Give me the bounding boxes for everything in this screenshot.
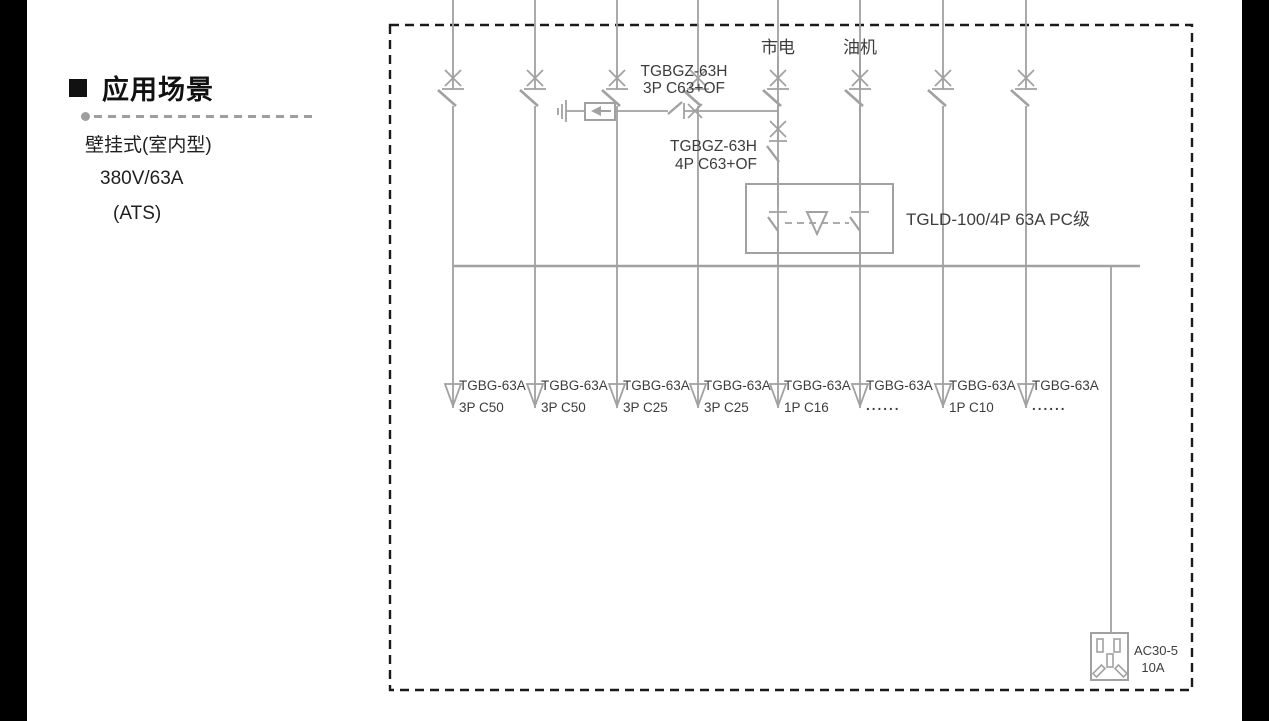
branch-3-spec-label: 3P C25 xyxy=(623,400,668,415)
ats-model-label: TGLD-100/4P 63A PC级 xyxy=(906,210,1090,229)
earth-ground-icon xyxy=(558,100,566,122)
diagram-labels: 市电 油机 TGBGZ-63H 3P C63+OF TGBGZ-63H 4P C… xyxy=(459,38,1178,675)
single-line-diagram: 市电 油机 TGBGZ-63H 3P C63+OF TGBGZ-63H 4P C… xyxy=(0,0,1269,721)
main-breaker-spec-label: 4P C63+OF xyxy=(675,156,757,173)
branch-1-spec-label: 3P C50 xyxy=(459,400,504,415)
slide: 应用场景 壁挂式(室内型) 380V/63A (ATS) xyxy=(0,0,1269,721)
branch-6-spec-label: ...... xyxy=(866,398,901,413)
branch-2-model-label: TGBG-63A xyxy=(541,378,608,393)
mains-label: 市电 xyxy=(761,38,795,57)
socket-branch xyxy=(1091,266,1128,680)
feeder-branch-1 xyxy=(438,0,464,408)
branch-2-spec-label: 3P C50 xyxy=(541,400,586,415)
diagram-dashed-border xyxy=(390,25,1192,690)
branch-7-spec-label: 1P C10 xyxy=(949,400,994,415)
branch-8-model-label: TGBG-63A xyxy=(1032,378,1099,393)
spd-branch xyxy=(558,100,778,122)
branch-5-spec-label: 1P C16 xyxy=(784,400,829,415)
branch-7-model-label: TGBG-63A xyxy=(949,378,1016,393)
diagram-wiring xyxy=(438,0,1140,680)
socket-icon xyxy=(1091,633,1128,680)
ats-left-blade-icon xyxy=(768,217,778,231)
ats-right-blade-icon xyxy=(850,217,860,231)
socket-model-label: AC30-5 xyxy=(1134,643,1178,658)
branch-6-model-label: TGBG-63A xyxy=(866,378,933,393)
feeder-branch-2 xyxy=(520,0,546,408)
spd-breaker-spec-label: 3P C63+OF xyxy=(643,80,725,97)
branch-8-spec-label: ...... xyxy=(1032,398,1067,413)
feeder-branch-5 xyxy=(763,0,789,408)
generator-label: 油机 xyxy=(843,38,877,57)
feeder-branch-4 xyxy=(683,0,709,408)
ats-switch xyxy=(746,184,893,266)
spd-breaker-model-label: TGBGZ-63H xyxy=(641,63,728,80)
feeder-branch-6 xyxy=(845,0,871,408)
surge-arrester-icon xyxy=(585,103,615,120)
branch-3-model-label: TGBG-63A xyxy=(623,378,690,393)
feeder-branch-8 xyxy=(1011,0,1037,408)
main-breaker-model-label: TGBGZ-63H xyxy=(670,138,757,155)
branch-1-model-label: TGBG-63A xyxy=(459,378,526,393)
branch-4-model-label: TGBG-63A xyxy=(704,378,771,393)
feeder-branch-7 xyxy=(928,0,954,408)
feeder-branch-3 xyxy=(602,0,628,408)
socket-rating-label: 10A xyxy=(1141,660,1164,675)
branch-4-spec-label: 3P C25 xyxy=(704,400,749,415)
branch-5-model-label: TGBG-63A xyxy=(784,378,851,393)
spd-breaker-blade-icon xyxy=(668,102,682,114)
